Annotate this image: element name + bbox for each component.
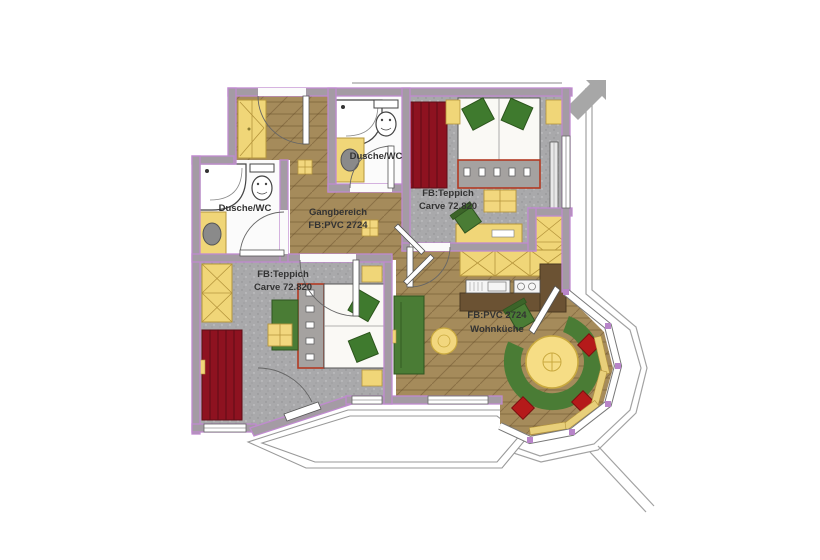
toilet-icon <box>374 100 398 136</box>
bath-left-door-leaf <box>240 250 284 256</box>
entry-door-gap <box>258 88 306 96</box>
bedroom-left-door-leaf <box>353 260 359 316</box>
sofa <box>391 296 424 374</box>
room-label-bedroom-top-line1: FB:Teppich <box>422 188 474 199</box>
stove-icon <box>514 280 540 293</box>
entry-wardrobe <box>238 100 266 158</box>
bedroom-left-door-gap <box>300 254 356 262</box>
radiator <box>550 142 558 208</box>
room-label-living-line2: Wohnküche <box>470 324 524 335</box>
sink-icon <box>466 280 510 293</box>
floor-plan-drawing: Dusche/WC Dusche/WC Gangbereich FB:PVC 2… <box>0 0 820 560</box>
floor-plan-canvas: Dusche/WC Dusche/WC Gangbereich FB:PVC 2… <box>0 0 820 560</box>
room-label-corridor-line1: Gangbereich <box>309 207 367 218</box>
room-label-bedroom-left-line1: FB:Teppich <box>257 269 309 280</box>
bath-left-door-gap <box>280 210 288 254</box>
storage-cabinet <box>202 264 232 322</box>
double-bed-top <box>458 98 540 188</box>
toilet-icon <box>250 164 274 200</box>
room-label-bath-left: Dusche/WC <box>219 203 272 214</box>
entry-door-leaf <box>303 96 309 144</box>
corridor-floor-marker <box>298 160 312 174</box>
room-label-corridor-line2: FB:PVC 2724 <box>308 220 368 231</box>
washbasin-icon <box>198 212 226 254</box>
room-label-bedroom-left-line2: Carve 72.820 <box>254 282 312 293</box>
room-label-bedroom-top-line2: Carve 72.820 <box>419 201 477 212</box>
pouf <box>431 328 457 354</box>
wardrobe-bedroom-left <box>199 330 242 420</box>
room-label-living-line1: FB:PVC 2724 <box>467 310 527 321</box>
bed-bench <box>484 190 516 212</box>
bath-top-door-gap <box>350 184 392 192</box>
double-bed-left <box>298 284 384 368</box>
dining-table <box>526 336 578 388</box>
room-label-bath-top: Dusche/WC <box>350 151 403 162</box>
bedroom-bench <box>268 300 298 350</box>
